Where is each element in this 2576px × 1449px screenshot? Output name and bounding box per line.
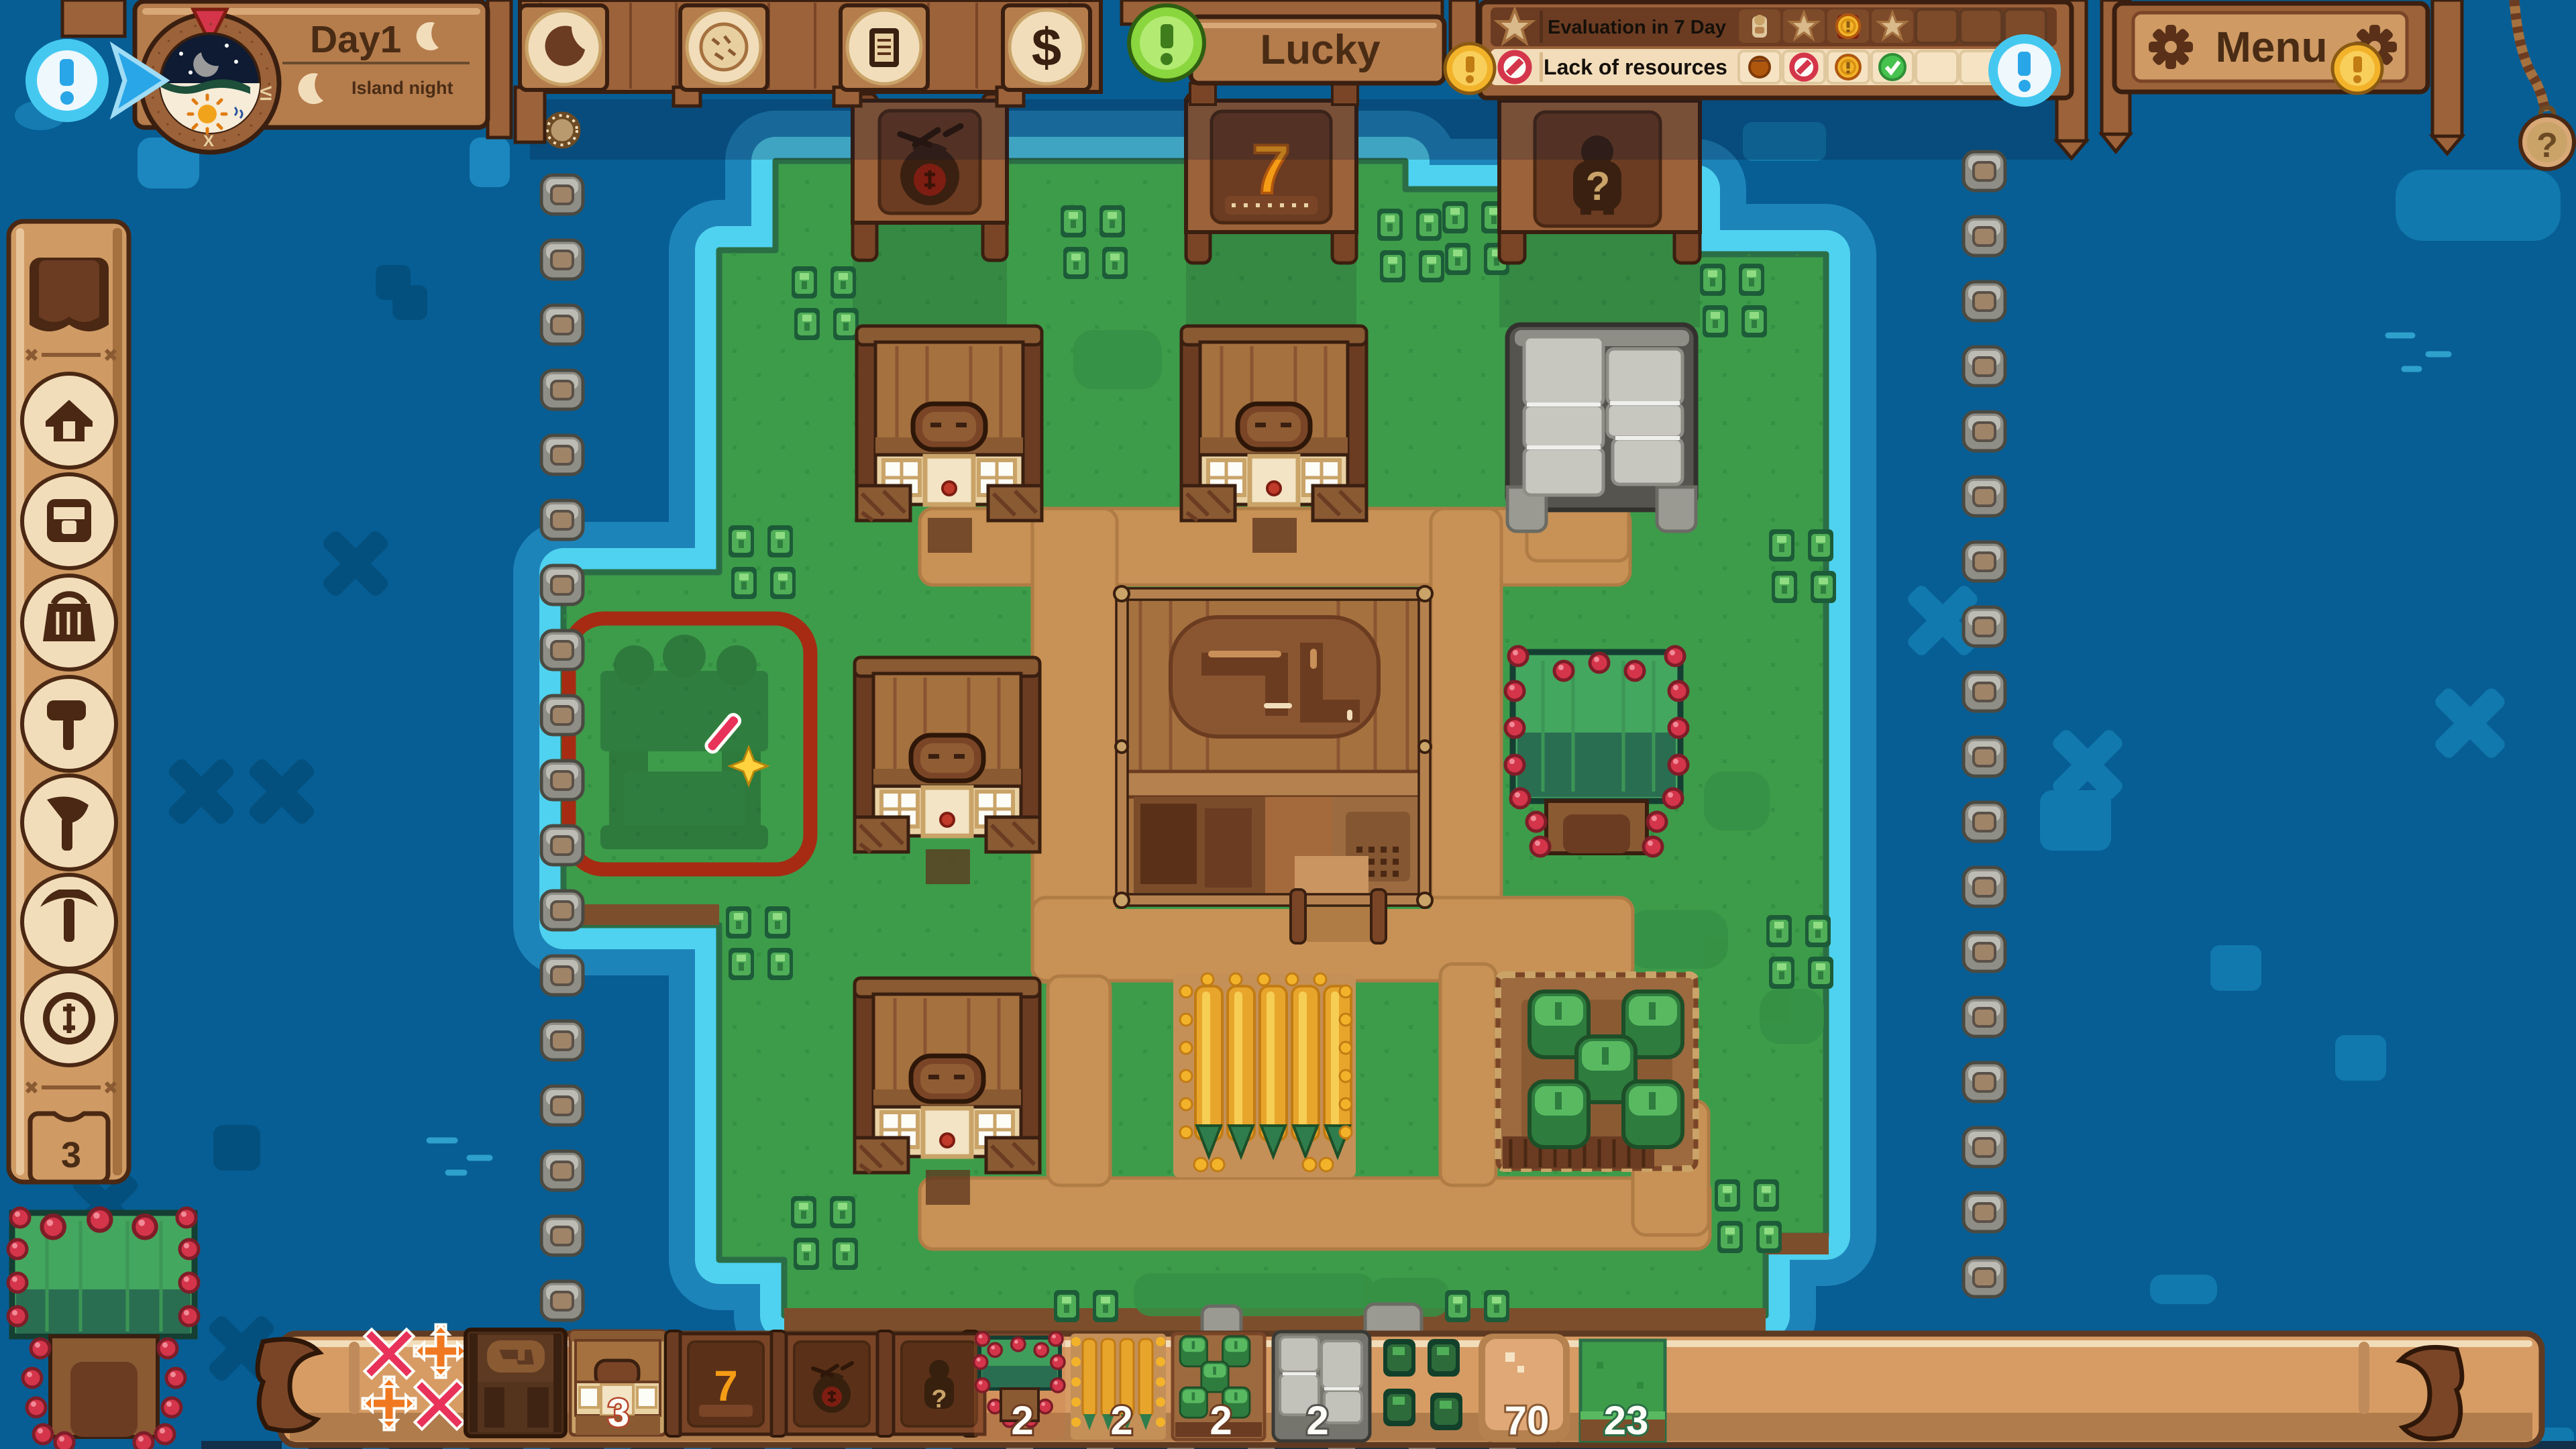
- svg-text:?: ?: [2536, 126, 2558, 165]
- svg-text:70: 70: [1505, 1398, 1550, 1443]
- svg-text:$: $: [1032, 17, 1062, 77]
- svg-text:VI: VI: [256, 86, 274, 101]
- svg-text:23: 23: [1604, 1398, 1649, 1443]
- svg-text:Lucky: Lucky: [1260, 27, 1381, 73]
- svg-text:Lack of resources: Lack of resources: [1544, 55, 1727, 79]
- svg-text:3: 3: [61, 1135, 81, 1175]
- svg-text:2: 2: [1210, 1398, 1232, 1443]
- svg-text:7: 7: [714, 1362, 738, 1410]
- svg-text:3: 3: [608, 1391, 629, 1435]
- svg-text:?: ?: [931, 1385, 947, 1413]
- svg-text:Menu: Menu: [2215, 23, 2327, 71]
- svg-text:Day1: Day1: [310, 18, 401, 61]
- svg-text:?: ?: [1586, 164, 1611, 209]
- svg-text:X: X: [203, 132, 214, 150]
- svg-text:2: 2: [1306, 1398, 1328, 1443]
- svg-text:Island night: Island night: [352, 78, 453, 98]
- svg-text:Evaluation in 7 Day: Evaluation in 7 Day: [1548, 17, 1726, 38]
- svg-text:2: 2: [1110, 1398, 1132, 1443]
- svg-text:2: 2: [1011, 1398, 1033, 1443]
